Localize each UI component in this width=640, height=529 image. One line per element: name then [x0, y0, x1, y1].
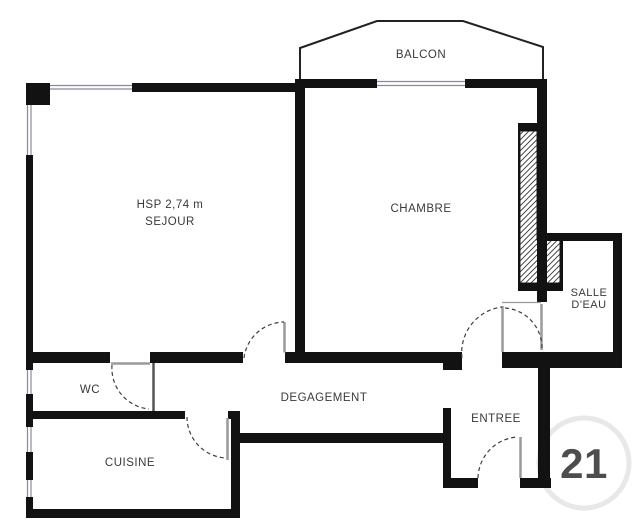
room-label-sejour: SEJOUR [145, 216, 195, 228]
room-label-wc: WC [80, 384, 100, 396]
room-label-entree: ENTREE [471, 413, 521, 425]
watermark-text: 21 [560, 440, 608, 487]
room-label-salle-deau-line1: SALLE [571, 287, 608, 299]
watermark: 21 [539, 418, 629, 508]
door-leaves-layer [111, 304, 542, 478]
ceiling-height-label: HSP 2,74 m [137, 199, 204, 211]
room-label-degagement: DEGAGEMENT [281, 392, 368, 404]
room-label-chambre: CHAMBRE [390, 203, 451, 215]
floor-plan: 21 BALCON HSP 2,74 m SEJOUR CHAMBRE SALL… [0, 0, 640, 529]
room-label-cuisine: CUISINE [105, 457, 155, 469]
room-label-balcon: BALCON [396, 49, 446, 61]
floor-plan-canvas: 21 BALCON HSP 2,74 m SEJOUR CHAMBRE SALL… [0, 0, 640, 529]
room-label-salle-deau-line2: D'EAU [571, 299, 606, 311]
